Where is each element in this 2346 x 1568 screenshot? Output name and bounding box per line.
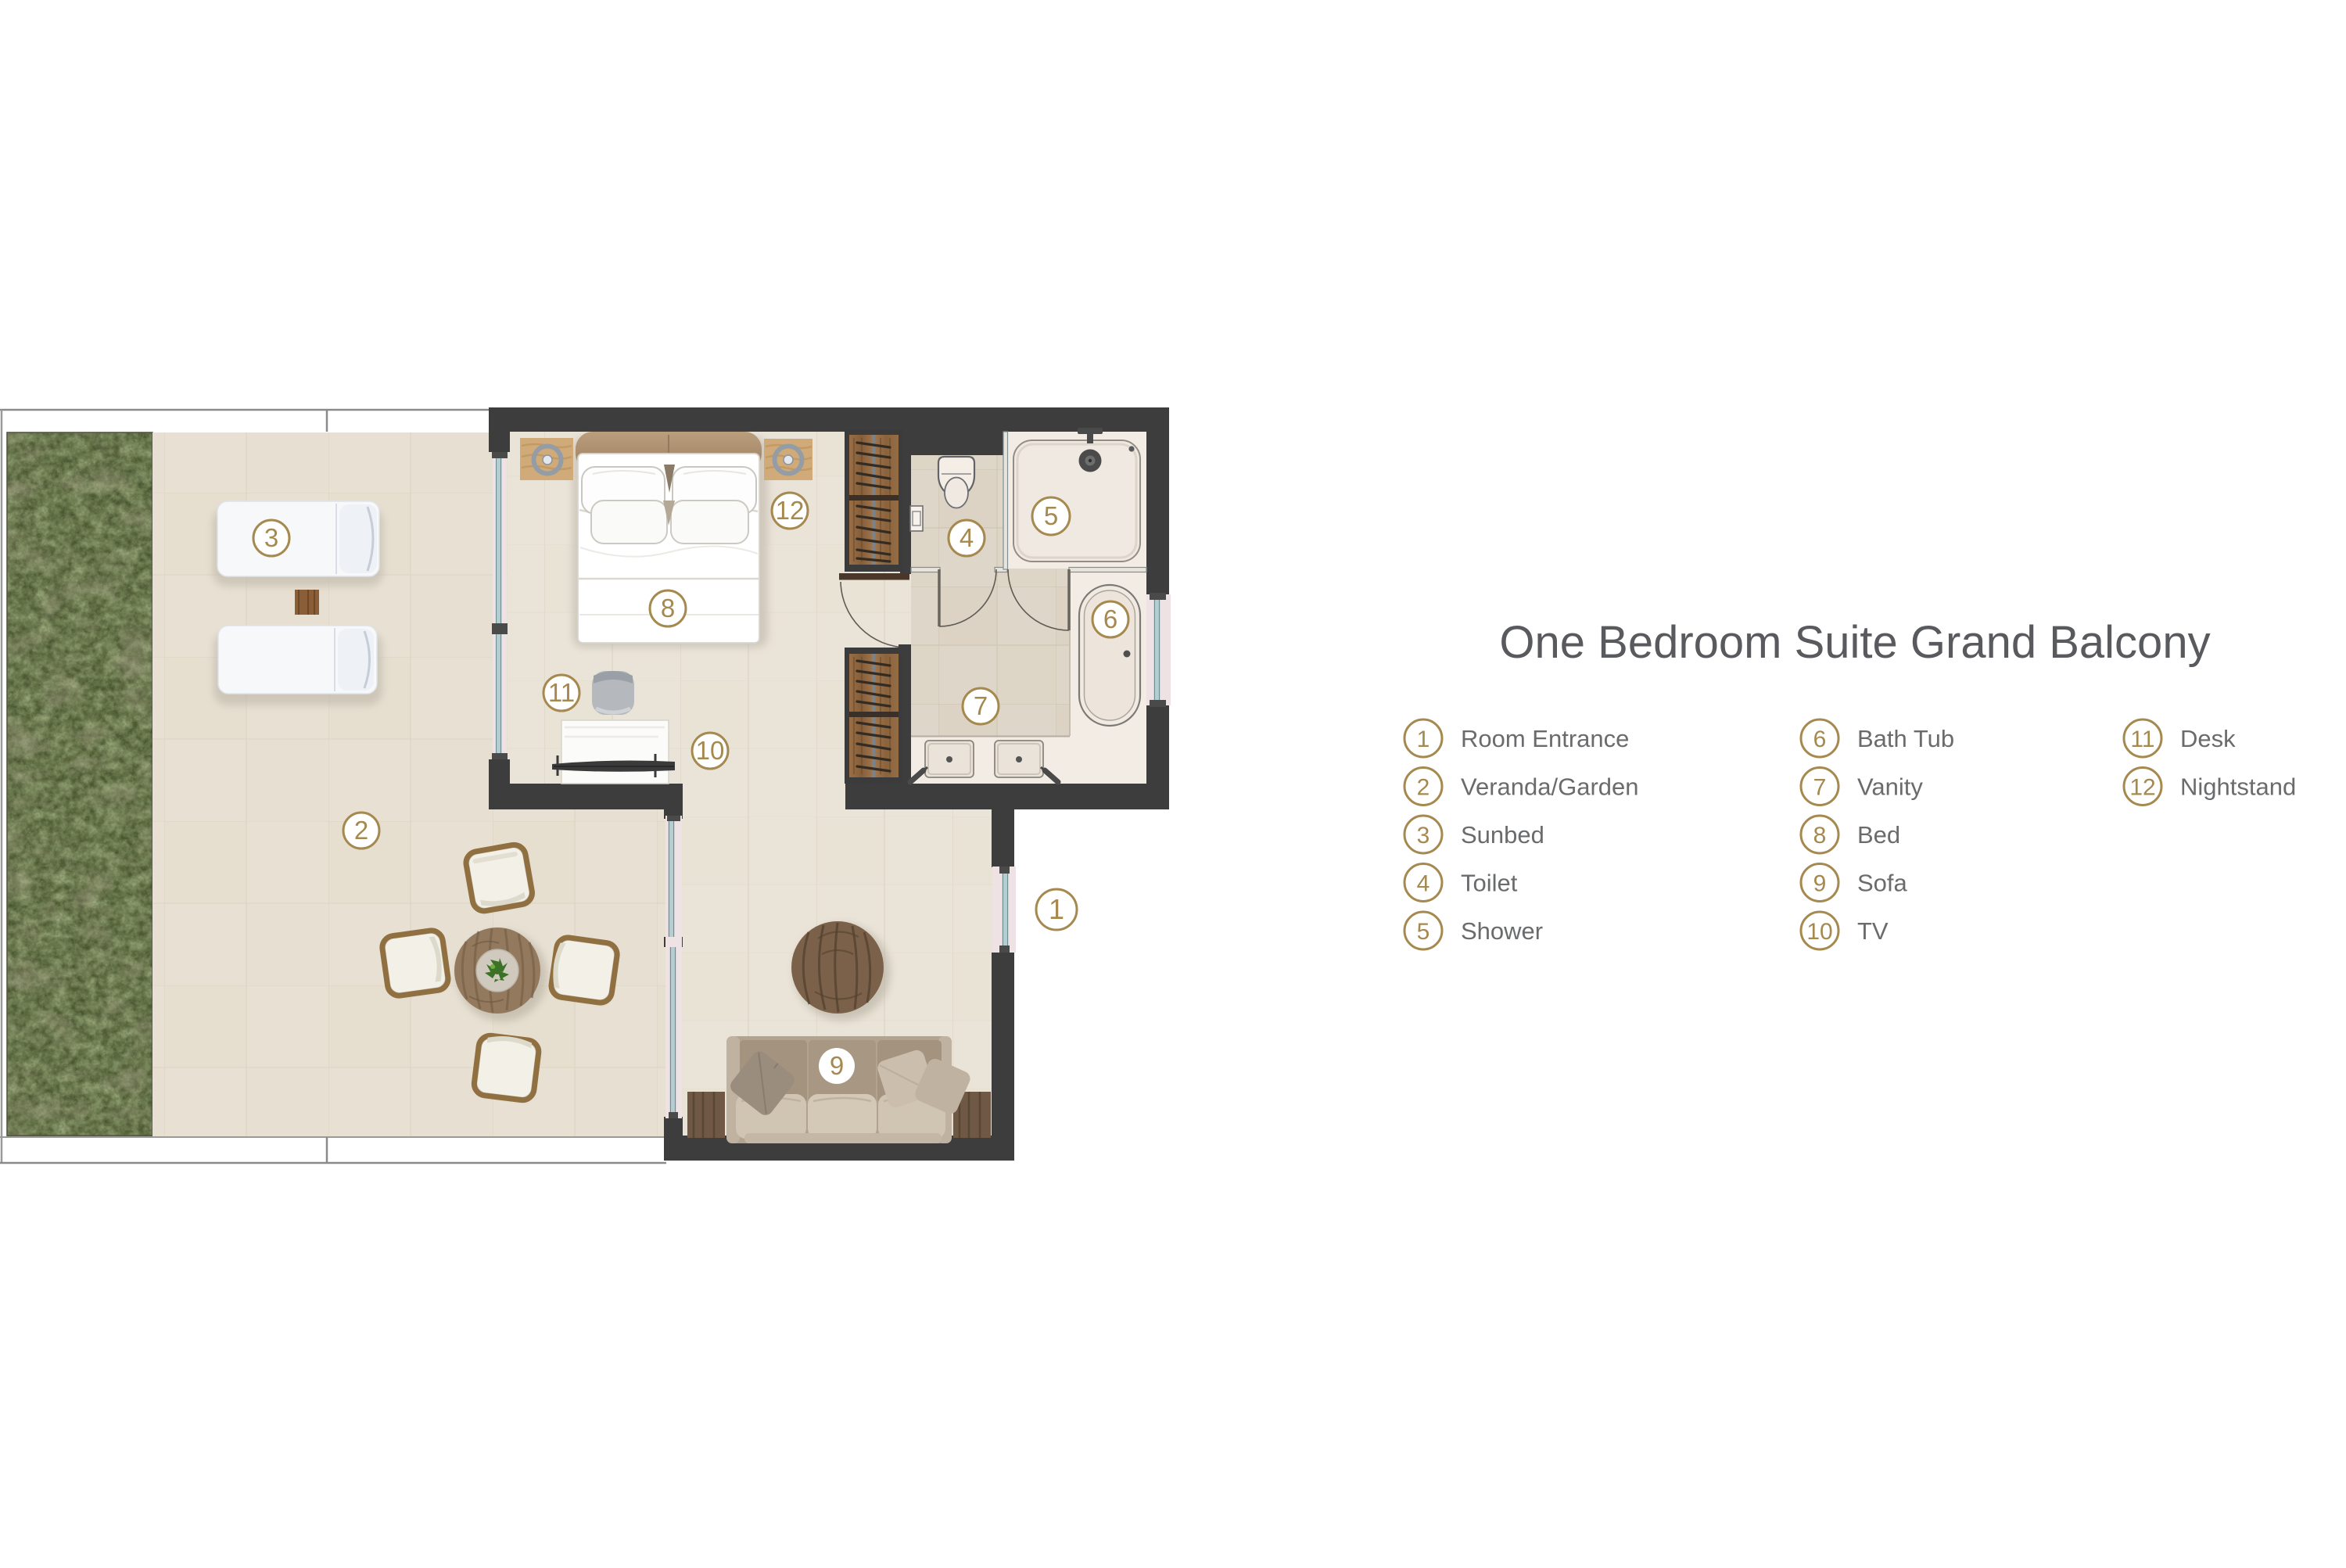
svg-text:Veranda/Garden: Veranda/Garden <box>1461 773 1639 801</box>
svg-text:7: 7 <box>1813 775 1827 801</box>
svg-text:Bath Tub: Bath Tub <box>1857 725 1954 752</box>
svg-text:9: 9 <box>830 1051 844 1080</box>
svg-text:6: 6 <box>1813 727 1827 752</box>
svg-text:4: 4 <box>960 523 974 552</box>
svg-text:5: 5 <box>1044 501 1058 530</box>
svg-text:7: 7 <box>974 691 988 720</box>
svg-text:TV: TV <box>1857 917 1889 945</box>
svg-text:One Bedroom Suite Grand Balcon: One Bedroom Suite Grand Balcony <box>1499 617 2210 668</box>
svg-text:Shower: Shower <box>1461 917 1543 945</box>
svg-text:6: 6 <box>1103 605 1117 633</box>
svg-text:12: 12 <box>2129 775 2155 801</box>
svg-text:2: 2 <box>354 816 368 845</box>
svg-text:Sunbed: Sunbed <box>1461 821 1544 849</box>
svg-text:1: 1 <box>1049 893 1064 925</box>
svg-text:Desk: Desk <box>2180 725 2236 752</box>
svg-text:Nightstand: Nightstand <box>2180 773 2296 801</box>
svg-text:5: 5 <box>1417 919 1430 945</box>
svg-text:9: 9 <box>1813 871 1827 897</box>
svg-text:4: 4 <box>1417 871 1430 897</box>
svg-text:11: 11 <box>548 678 575 707</box>
svg-text:11: 11 <box>2130 727 2154 752</box>
svg-text:3: 3 <box>1417 823 1430 849</box>
svg-text:8: 8 <box>661 594 675 623</box>
svg-text:12: 12 <box>776 496 805 525</box>
svg-text:8: 8 <box>1813 823 1827 849</box>
svg-text:Bed: Bed <box>1857 821 1900 849</box>
svg-text:Toilet: Toilet <box>1461 870 1518 897</box>
svg-text:Vanity: Vanity <box>1857 773 1923 801</box>
svg-text:1: 1 <box>1417 727 1430 752</box>
svg-text:10: 10 <box>1806 919 1832 945</box>
svg-text:Sofa: Sofa <box>1857 870 1908 897</box>
svg-text:Room Entrance: Room Entrance <box>1461 725 1629 752</box>
svg-text:2: 2 <box>1417 775 1430 801</box>
svg-text:3: 3 <box>264 523 278 552</box>
svg-text:10: 10 <box>696 736 725 765</box>
